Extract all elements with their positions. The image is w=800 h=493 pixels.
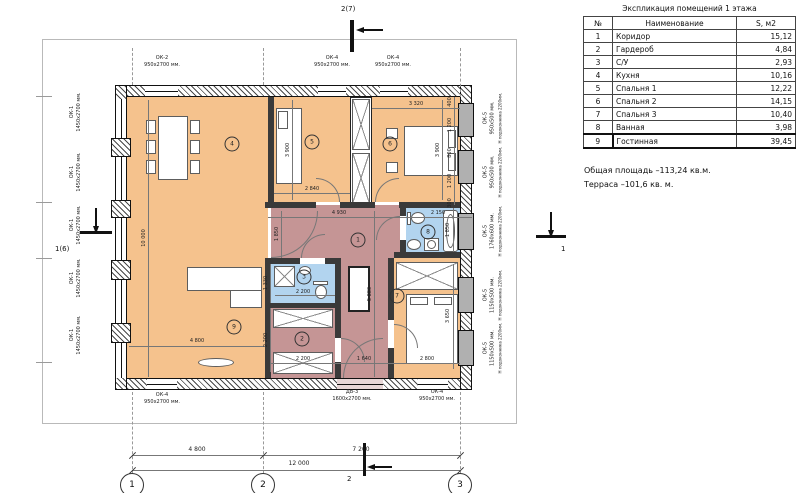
- axis-line: [132, 392, 133, 474]
- wall: [400, 208, 406, 216]
- cell-name: Спальня 2: [613, 95, 737, 108]
- opening-label: ОК-5 950х500 мм. H подоконника 2200мм.: [483, 147, 504, 198]
- dim-label: 2 840: [305, 186, 319, 192]
- cell-area: 12,22: [737, 82, 796, 95]
- drawing-sheet: 1 2 3 4 5 6 7 8 9 4 800 10 000 3 900 2 8…: [0, 0, 800, 493]
- shaft-duct: [352, 153, 370, 203]
- shower-tray: [274, 266, 295, 287]
- section-arrow-left-icon: [353, 27, 364, 33]
- section-arrow-down-icon: [548, 230, 554, 241]
- wall: [265, 202, 316, 208]
- opening-label: ОК-5 1150х500 мм. H подоконника 2200мм.: [483, 270, 504, 321]
- window-ok4: [380, 85, 408, 97]
- table-row: 5 Спальня 1 12,22: [584, 82, 796, 95]
- opening-size: 1450х2700 мм.: [76, 152, 83, 191]
- axis-line: [263, 392, 264, 474]
- dim-label: 4 800: [190, 338, 204, 344]
- section-marker-left-arrow-line: [95, 208, 97, 228]
- dim-label: 2 150: [431, 210, 445, 216]
- cell-area: 39,45: [737, 134, 796, 148]
- room-schedule: Экспликация помещений 1 этажа № Наименов…: [583, 2, 796, 149]
- window-ok5: [458, 277, 474, 313]
- dim-line: [274, 193, 350, 194]
- opening-label: ОК-4 950х2700 мм.: [314, 55, 350, 69]
- sink: [407, 239, 421, 250]
- dim-label: 2 200: [263, 333, 269, 347]
- window-ok1: [115, 218, 127, 260]
- room-badge-wc: 3: [297, 270, 312, 285]
- pilaster: [111, 323, 131, 343]
- dim-line: [454, 97, 455, 205]
- opening-size: 1150х500 мм.: [490, 323, 497, 374]
- dim-line: [281, 211, 282, 258]
- opening-sill: H подоконника 2200мм.: [497, 93, 504, 144]
- opening-code: ОК-5: [483, 270, 490, 321]
- table-row: 7 Спальня 3 10,40: [584, 108, 796, 121]
- opening-size: 950х2700 мм.: [419, 396, 455, 403]
- opening-code: ОК-2: [144, 55, 180, 62]
- wall: [265, 303, 341, 308]
- table-row-total: 9 Гостинная 39,45: [584, 134, 796, 148]
- opening-sill: H подоконника 2200мм.: [497, 147, 504, 198]
- chair: [190, 140, 200, 154]
- opening-code: ДВ-3: [332, 389, 371, 396]
- axis-dim-label: 12 000: [289, 461, 310, 467]
- section-marker-bottom-line: [363, 443, 366, 476]
- axis-dim-label: 7 200: [352, 447, 369, 453]
- cell-area: 14,15: [737, 95, 796, 108]
- wall: [335, 362, 341, 378]
- dim-label: 300: [447, 198, 453, 208]
- opening-size: 950х500 мм.: [490, 147, 497, 198]
- opening-code: ОК-1: [69, 152, 76, 191]
- dim-label: 1 850: [274, 227, 280, 241]
- opening-label: ОК-5 1760х600 мм. H подоконника 2200мм.: [483, 206, 504, 257]
- cell-area: 10,40: [737, 108, 796, 121]
- note-total-area: Общая площадь –113,24 кв.м.: [584, 166, 711, 175]
- room-badge-bedroom2: 6: [383, 137, 398, 152]
- dim-label: 2 800: [420, 356, 434, 362]
- opening-label: ОК-5 1150х500 мм. H подоконника 2200мм.: [483, 323, 504, 374]
- pilaster: [111, 138, 131, 157]
- axis-line: [460, 392, 461, 474]
- chair: [190, 160, 200, 174]
- opening-code: ОК-5: [483, 323, 490, 374]
- opening-size: 950х500 мм.: [490, 93, 497, 144]
- axis-line: [460, 48, 461, 97]
- section-marker-top-line: [350, 20, 354, 52]
- dim-label: 2 200: [296, 356, 310, 362]
- room-badge-bedroom3: 7: [390, 289, 405, 304]
- section-marker-right-arrow-line: [550, 212, 552, 232]
- dim-line: [148, 100, 149, 377]
- dim-label: 1 200: [447, 174, 453, 188]
- opening-sill: H подоконника 2200мм.: [497, 270, 504, 321]
- cell-area: 15,12: [737, 30, 796, 43]
- dim-label: 3 900: [435, 143, 441, 157]
- pilaster: [111, 200, 131, 218]
- room-badge-corridor: 1: [351, 233, 366, 248]
- room-schedule-title: Экспликация помещений 1 этажа: [583, 2, 796, 16]
- opening-size: 950х2700 мм.: [144, 399, 180, 406]
- axis-line: [263, 48, 264, 85]
- cell-name: Ванная: [613, 121, 737, 135]
- window-ok1: [115, 343, 127, 378]
- section-marker-left-label: 1(6): [55, 245, 69, 253]
- section-arrow-down-icon: [93, 226, 99, 237]
- dim-label: 3 320: [409, 101, 423, 107]
- cell-num: 2: [584, 43, 613, 56]
- dim-label: 2 200: [296, 289, 310, 295]
- pillow: [278, 111, 288, 129]
- dim-label: 1 640: [357, 356, 371, 362]
- opening-code: ОК-5: [483, 206, 490, 257]
- axis-dim-label: 4 800: [188, 447, 205, 453]
- dim-label: 1 200: [447, 118, 453, 132]
- section-arrow-left-icon: [364, 464, 375, 470]
- cell-name: С/У: [613, 56, 737, 69]
- toilet: [411, 212, 425, 224]
- nightstand: [386, 162, 398, 173]
- cell-num: 5: [584, 82, 613, 95]
- opening-label: ОК-1 1450х2700 мм.: [69, 92, 83, 131]
- dim-line: [275, 295, 335, 296]
- wall: [335, 258, 341, 338]
- opening-code: ОК-5: [483, 93, 490, 144]
- room-badge-wardrobe: 2: [295, 332, 310, 347]
- opening-label: ОК-1 1450х2700 мм.: [69, 205, 83, 244]
- cell-num: 8: [584, 121, 613, 135]
- dim-label: 4 930: [332, 210, 346, 216]
- room-badge-bedroom1: 5: [305, 135, 320, 150]
- opening-size: 1450х2700 мм.: [76, 92, 83, 131]
- room-badge-kitchen: 4: [225, 137, 240, 152]
- opening-code: ОК-1: [69, 205, 76, 244]
- window-ok2: [145, 85, 178, 97]
- wall: [268, 97, 274, 205]
- cell-num: 6: [584, 95, 613, 108]
- frame-tick: [36, 96, 52, 97]
- cell-name: Гардероб: [613, 43, 737, 56]
- section-marker-bottom-label: 2: [347, 475, 351, 483]
- opening-label: ОК-1 1450х2700 мм.: [69, 315, 83, 354]
- dim-label: 10 000: [141, 229, 147, 247]
- chair: [190, 120, 200, 134]
- table-header-row: № Наименование S, м2: [584, 17, 796, 30]
- frame-tick: [36, 362, 52, 363]
- kitchen-counter-return: [230, 290, 262, 308]
- opening-code: ОК-4: [375, 55, 411, 62]
- opening-sill: H подоконника 2200мм.: [497, 206, 504, 257]
- opening-label: ДВ-3 1600х2700 мм.: [332, 389, 371, 403]
- dim-chain-line: [132, 455, 460, 456]
- dim-line: [442, 100, 443, 200]
- opening-code: ОК-1: [69, 258, 76, 297]
- dim-label: 1 330: [263, 276, 269, 290]
- cell-name: Спальня 3: [613, 108, 737, 121]
- dim-line: [453, 208, 454, 252]
- opening-size: 950х2700 мм.: [314, 62, 350, 69]
- window-ok1: [115, 280, 127, 323]
- wardrobe-bedroom3: [396, 262, 458, 290]
- dim-label: 3 650: [445, 309, 451, 323]
- dim-label: 1 850: [445, 223, 451, 237]
- opening-size: 950х2700 мм.: [375, 62, 411, 69]
- cell-num: 4: [584, 69, 613, 82]
- window-ok5: [458, 213, 474, 250]
- window-ok5: [458, 103, 474, 137]
- cell-num: 3: [584, 56, 613, 69]
- dim-label: 3 900: [285, 143, 291, 157]
- opening-label: ОК-1 1450х2700 мм.: [69, 152, 83, 191]
- window-ok1: [115, 99, 127, 138]
- cell-area: 3,98: [737, 121, 796, 135]
- wardrobe-shelf: [273, 309, 333, 328]
- dim-label: 5 880: [367, 287, 373, 301]
- cell-name: Коридор: [613, 30, 737, 43]
- kitchen-counter: [187, 267, 262, 291]
- opening-size: 1450х2700 мм.: [76, 205, 83, 244]
- toilet: [315, 285, 327, 299]
- opening-label: ОК-1 1450х2700 мм.: [69, 258, 83, 297]
- room-schedule-table: № Наименование S, м2 1 Коридор 15,12 2 Г…: [583, 16, 796, 149]
- opening-size: 1600х2700 мм.: [332, 396, 371, 403]
- pilaster: [111, 260, 131, 280]
- dim-line: [268, 217, 472, 218]
- dim-line: [453, 264, 454, 369]
- opening-code: ОК-1: [69, 92, 76, 131]
- opening-size: 1450х2700 мм.: [76, 315, 83, 354]
- col-header-num: №: [584, 17, 613, 30]
- opening-label: ОК-4 950х2700 мм.: [375, 55, 411, 69]
- opening-size: 1150х500 мм.: [490, 270, 497, 321]
- room-badge-living: 9: [227, 320, 242, 335]
- dining-table: [158, 116, 188, 180]
- col-header-name: Наименование: [613, 17, 737, 30]
- opening-code: ОК-4: [314, 55, 350, 62]
- frame-tick: [36, 258, 52, 259]
- dim-chain-line: [132, 470, 460, 471]
- wall: [400, 240, 406, 252]
- cell-area: 10,16: [737, 69, 796, 82]
- cell-area: 2,93: [737, 56, 796, 69]
- table-row: 4 Кухня 10,16: [584, 69, 796, 82]
- dim-line: [129, 346, 265, 347]
- shaft-duct: [352, 99, 370, 150]
- pillow: [410, 297, 428, 305]
- section-marker-right-label: 1: [561, 245, 565, 253]
- opening-code: ОК-1: [69, 315, 76, 354]
- axis-bubble-1: 1: [120, 473, 144, 493]
- opening-size: 1450х2700 мм.: [76, 258, 83, 297]
- table-row: 1 Коридор 15,12: [584, 30, 796, 43]
- cell-name: Спальня 1: [613, 82, 737, 95]
- opening-size: 950х2700 мм.: [144, 62, 180, 69]
- section-marker-top-label: 2(7): [341, 5, 355, 13]
- frame-tick: [36, 202, 52, 203]
- dim-label: 400: [447, 97, 453, 107]
- wall: [394, 252, 460, 258]
- opening-label: ОК-2 950х2700 мм.: [144, 55, 180, 69]
- window-ok1: [115, 157, 127, 200]
- dim-line: [292, 100, 293, 200]
- table-row: 6 Спальня 2 14,15: [584, 95, 796, 108]
- dim-line: [271, 363, 460, 364]
- opening-label: ОК-5 950х500 мм. H подоконника 2200мм.: [483, 93, 504, 144]
- table-row: 8 Ванная 3,98: [584, 121, 796, 135]
- dim-label: 800: [447, 148, 453, 158]
- window-ok4: [147, 378, 177, 390]
- pillow: [434, 297, 452, 305]
- table-row: 2 Гардероб 4,84: [584, 43, 796, 56]
- opening-label: ОК-4 950х2700 мм.: [419, 389, 455, 403]
- axis-bubble-3: 3: [448, 473, 472, 493]
- cell-num: 7: [584, 108, 613, 121]
- dim-line: [374, 211, 375, 377]
- note-terrace-area: Терраса –101,6 кв. м.: [584, 180, 673, 189]
- console-table: [198, 358, 234, 367]
- opening-code: ОК-4: [419, 389, 455, 396]
- cell-num: 1: [584, 30, 613, 43]
- opening-sill: H подоконника 2200мм.: [497, 323, 504, 374]
- wall: [340, 202, 375, 208]
- opening-code: ОК-4: [144, 392, 180, 399]
- cell-name: Кухня: [613, 69, 737, 82]
- col-header-area: S, м2: [737, 17, 796, 30]
- window-ok4: [318, 85, 346, 97]
- window-ok5: [458, 150, 474, 184]
- opening-size: 1760х600 мм.: [490, 206, 497, 257]
- axis-bubble-2: 2: [251, 473, 275, 493]
- opening-label: ОК-4 950х2700 мм.: [144, 392, 180, 406]
- cell-area: 4,84: [737, 43, 796, 56]
- cell-num: 9: [584, 134, 613, 148]
- dim-line: [372, 108, 460, 109]
- window-ok5: [458, 330, 474, 366]
- washer-drum: [427, 240, 436, 249]
- cell-name: Гостинная: [613, 134, 737, 148]
- room-badge-bathroom: 8: [421, 225, 436, 240]
- dim-line: [270, 264, 271, 303]
- table-row: 3 С/У 2,93: [584, 56, 796, 69]
- opening-code: ОК-5: [483, 147, 490, 198]
- axis-line: [132, 48, 133, 85]
